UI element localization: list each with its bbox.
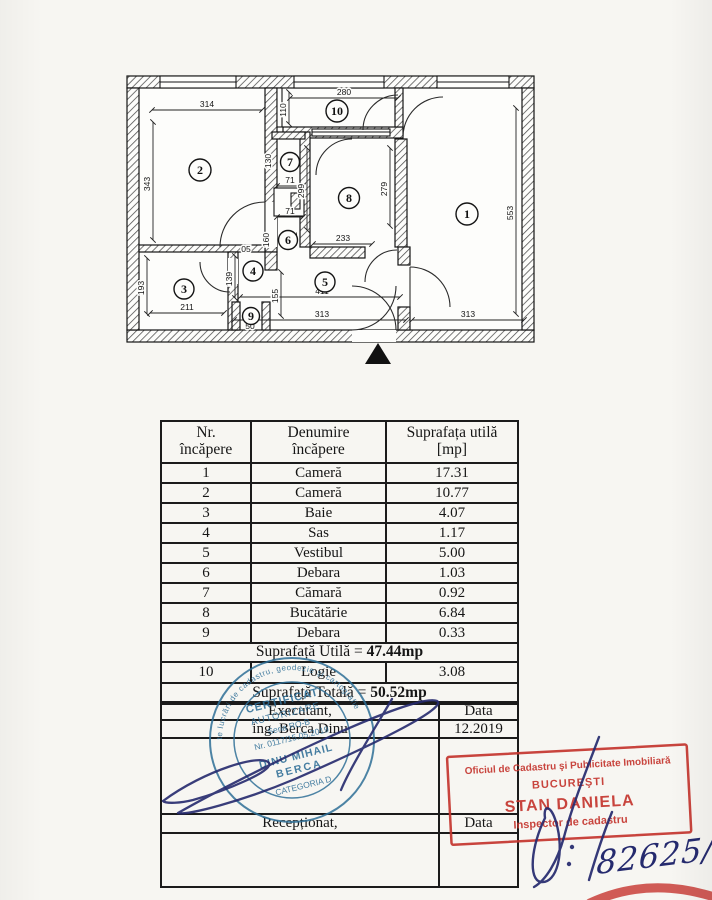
svg-text:4: 4 [250, 264, 256, 278]
svg-text:2: 2 [197, 163, 203, 177]
svg-text:10: 10 [331, 104, 343, 118]
table-row: 4Sas1.17 [161, 523, 518, 543]
svg-text:314: 314 [200, 99, 214, 109]
table-row-10: 10 Logie 3.08 [161, 662, 518, 683]
utila-value: 47.44mp [367, 643, 423, 660]
svg-text:313: 313 [461, 309, 475, 319]
table-row: 6Debara1.03 [161, 563, 518, 583]
floor-plan: 314 343 193 211 280 110 71 71 130 299 27… [0, 0, 712, 420]
office-stamp-cell [439, 738, 518, 814]
svg-text:BUCUREŞTI: BUCUREŞTI [532, 776, 606, 792]
svg-text:110: 110 [278, 103, 288, 117]
table-row: 8Bucătărie6.84 [161, 603, 518, 623]
svg-text:155: 155 [270, 289, 280, 303]
svg-text:160: 160 [261, 233, 271, 247]
room-area-table: Nr.încăpere Denumireîncăpere Suprafața u… [160, 420, 519, 705]
table-header-row: Nr.încăpere Denumireîncăpere Suprafața u… [161, 421, 518, 463]
table-row: 2Cameră10.77 [161, 483, 518, 503]
data-label-2: Data [439, 814, 518, 832]
svg-text:1: 1 [464, 207, 470, 221]
svg-text:8: 8 [346, 191, 352, 205]
utila-label: Suprafață Utilă = [256, 643, 367, 660]
data-value: 12.2019 [439, 720, 518, 738]
svg-text:05: 05 [241, 244, 251, 254]
svg-text:313: 313 [315, 309, 329, 319]
svg-text:7: 7 [287, 155, 293, 169]
inspector-signature [533, 737, 612, 887]
table-row: 1Cameră17.31 [161, 463, 518, 483]
svg-text:299: 299 [296, 184, 306, 198]
svg-text:233: 233 [336, 233, 350, 243]
svg-text:9: 9 [248, 309, 254, 323]
svg-text:Inspector de cadastru: Inspector de cadastru [513, 814, 628, 832]
totala-value: 50.52mp [370, 684, 426, 701]
executant-name: ing. Berca Dinu [161, 720, 439, 738]
svg-text:6: 6 [285, 233, 291, 247]
signature-block: Executant, Data ing. Berca Dinu 12.2019 … [160, 701, 519, 888]
table-row: 9Debara0.33 [161, 623, 518, 643]
svg-text:343: 343 [142, 177, 152, 191]
svg-text:71: 71 [285, 175, 295, 185]
svg-text:71: 71 [285, 206, 295, 216]
svg-text:553: 553 [505, 206, 515, 220]
partial-red-stamp-arc [590, 888, 712, 900]
executant-label: Executant, [161, 702, 439, 720]
svg-text:139: 139 [224, 272, 234, 286]
svg-text:130: 130 [263, 154, 273, 168]
handwritten-number: 82625/2019 [596, 819, 712, 882]
header-nr: Nr.încăpere [161, 421, 251, 463]
header-suprafata: Suprafața utilă[mp] [386, 421, 518, 463]
svg-text:5: 5 [322, 275, 328, 289]
north-arrow [365, 343, 391, 364]
svg-text:STAN DANIELA: STAN DANIELA [504, 792, 635, 816]
scanned-document-page: 314 343 193 211 280 110 71 71 130 299 27… [0, 0, 712, 900]
table-row: 3Baie4.07 [161, 503, 518, 523]
svg-text:280: 280 [337, 87, 351, 97]
table-row: 7Cămară0.92 [161, 583, 518, 603]
data-label: Data [439, 702, 518, 720]
receptionat-label: Recepționat, [161, 814, 439, 832]
executant-stamp-cell [161, 738, 439, 814]
subtotal-row: Suprafață Utilă = 47.44mp [161, 643, 518, 662]
svg-text:3: 3 [181, 282, 187, 296]
svg-text:193: 193 [136, 281, 146, 295]
header-denumire: Denumireîncăpere [251, 421, 386, 463]
svg-text:211: 211 [180, 302, 194, 312]
totala-label: Suprafață Totală = [252, 684, 370, 701]
table-row: 5Vestibul5.00 [161, 543, 518, 563]
svg-text:279: 279 [379, 182, 389, 196]
